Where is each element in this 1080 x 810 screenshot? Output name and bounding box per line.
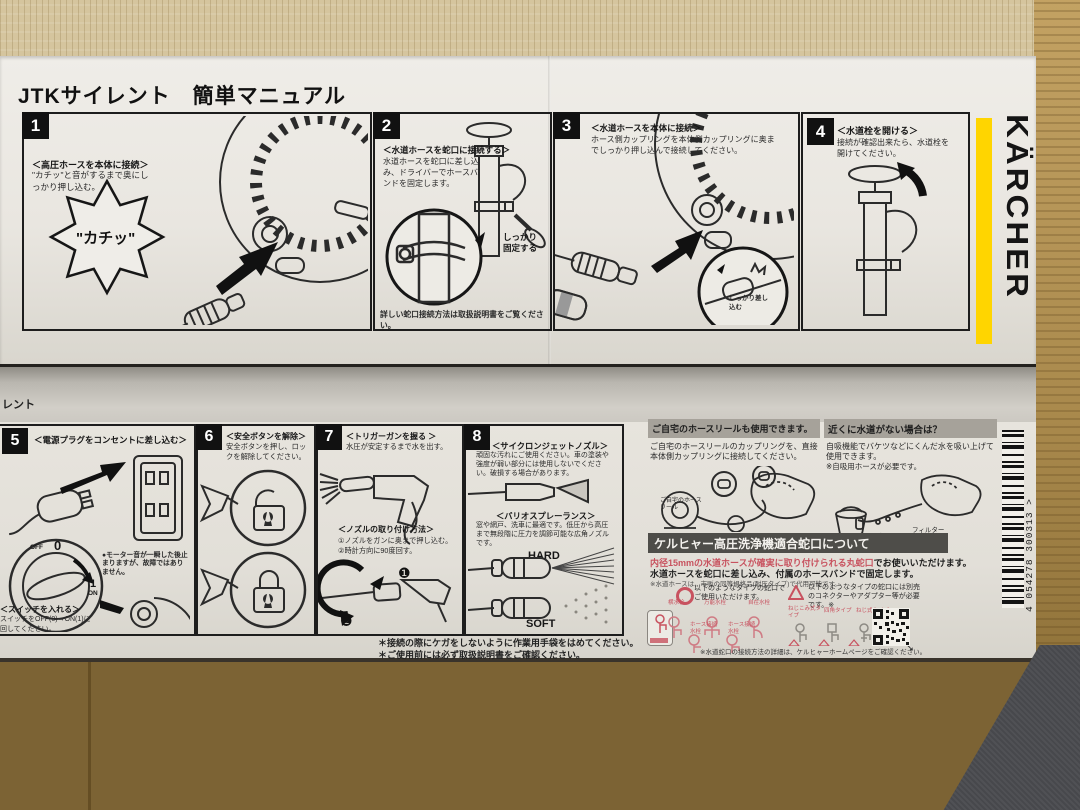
- step7-body: 水圧が安定するまで水を出す。: [346, 442, 456, 452]
- dial-zero-label: 0: [54, 538, 61, 553]
- karcher-logo: KÄRCHER: [972, 108, 1036, 354]
- self-priming-illustration: [826, 474, 996, 536]
- ng-faucet-glyphs: [788, 620, 884, 646]
- hose-reel-header: ご自宅のホースリールも使用できます。: [648, 419, 820, 438]
- dial-off-label: OFF: [30, 544, 43, 551]
- tatami-floor-bottom: [0, 656, 1080, 810]
- step5-sub-body: スイッチをOFF(0)→ON(1)に回してください。: [0, 615, 96, 635]
- marker-1-icon: ❶: [398, 566, 411, 580]
- step5-sub-heading: ＜スイッチを入れる＞: [0, 604, 80, 615]
- karcher-wordmark: KÄRCHER: [1000, 114, 1035, 352]
- click-sound-callout: "カチッ": [76, 227, 135, 248]
- step7-step-b: ②時計方向に90度回す。: [338, 546, 458, 556]
- tatami-floor-right: [1034, 0, 1080, 700]
- step7-number: 7: [316, 424, 342, 450]
- ng-type-1: ねじこみ式タイプ: [788, 606, 822, 619]
- faucet-section-header: ケルヒャー高圧洗浄機適合蛇口について: [648, 533, 948, 553]
- manual-title: JTKサイレント 簡単マニュアル: [18, 80, 346, 110]
- step4-number: 4: [807, 118, 834, 145]
- clamp-magnifier-illustration: [383, 206, 485, 308]
- faucet-footer: ※水道蛇口の接続方法の詳細は、ケルヒャーホームページをご確認ください。: [700, 646, 926, 656]
- ok-type-4: ホース接続水栓: [690, 622, 720, 635]
- safety-lock-illustration: [198, 466, 310, 630]
- barcode-number: 4 054278 300313 >: [1024, 428, 1035, 612]
- step7-step-a: ①ノズルをガンに奥まで押し込む。: [338, 536, 458, 546]
- step4-panel: 4 ＜水道栓を開ける＞ 接続が確認出来たら、水道栓を開けてください。: [801, 112, 970, 331]
- tatami-seam: [88, 660, 91, 810]
- box-edge-strip: [0, 364, 1036, 425]
- step8-number: 8: [464, 424, 490, 450]
- step8-panel: 8 ＜サイクロンジェットノズル＞ 頑固な汚れにご使用ください。車の塗装や強度が弱…: [464, 424, 624, 636]
- step1-panel: 1 "カチッ" ＜高圧ホースを: [22, 112, 372, 331]
- tatami-floor-top: [0, 0, 1080, 60]
- step3-heading: ＜水道ホースを本体に接続＞: [591, 122, 701, 134]
- step2-number: 2: [373, 112, 400, 139]
- edge-partial-label: レント: [2, 396, 35, 412]
- step1-number: 1: [22, 112, 49, 139]
- step6-panel: 6 ＜安全ボタンを解除＞ 安全ボタンを押し、ロックを解除してください。: [196, 424, 316, 636]
- step7-heading: ＜トリガーガンを握る ＞: [346, 431, 436, 442]
- step6-number: 6: [196, 424, 222, 450]
- footnote-2: ＊ご使用前には必ず取扱説明書をご確認ください。: [378, 648, 585, 661]
- step5-heading: ＜電源プラグをコンセントに差し込む＞: [34, 434, 187, 446]
- step2-panel: 2 ＜水道ホースを蛇口に接続する＞ 水道ホースを蛇口に差し込み、ドライバーでホー…: [373, 112, 552, 331]
- ng-type-2: 四角タイプ: [824, 606, 852, 614]
- dial-one-label: 1: [90, 578, 96, 590]
- step1-body: "カチッ"と音がするまで奥にしっかり押し込む。: [32, 170, 150, 194]
- pressure-washer-illustration: [152, 116, 368, 325]
- step5-panel: 5 ＜: [0, 424, 196, 636]
- warning-triangle-icon: [788, 585, 804, 600]
- marker-2-icon: ❷: [340, 614, 353, 628]
- step6-heading: ＜安全ボタンを解除＞: [226, 431, 306, 442]
- ok-type-3: 自在水栓: [748, 598, 770, 606]
- qr-code: [872, 608, 910, 646]
- karcher-yellow-bar: [976, 118, 992, 344]
- step5-note: ●モーター音が一瞬した後止まりますが、故障ではありません。: [102, 552, 190, 577]
- step7-panel: 7 ＜トリガーガンを握る ＞ 水圧が安定するまで水を出す。 ＜ノズルの取り付け方…: [316, 424, 464, 636]
- ok-type-2: 万能水栓: [704, 598, 726, 606]
- step2-note: しっかり固定する: [503, 232, 543, 254]
- ok-type-1: 横水栓: [668, 598, 685, 606]
- hose-reel-label: ご自宅のホースリール: [660, 498, 706, 512]
- step2-body: 水道ホースを蛇口に差し込み、ドライバーでホースバンドを固定します。: [383, 156, 479, 190]
- open-tap-illustration: [827, 160, 947, 320]
- no-water-header: 近くに水道がない場合は？: [824, 419, 997, 438]
- step4-body: 接続が確認出来たら、水道栓を開けてください。: [837, 137, 955, 159]
- step2-footer: 詳しい蛇口接続方法は取扱説明書をご覧ください。: [380, 310, 548, 332]
- step8-heading1: ＜サイクロンジェットノズル＞: [492, 440, 608, 452]
- ok-type-5: ホース接続水栓: [728, 622, 758, 635]
- step4-heading: ＜水道栓を開ける＞: [837, 124, 918, 137]
- step3-body: ホース側カップリングを本体側カップリングに奥までしっかり押し込んで接続してくださ…: [591, 134, 781, 156]
- step2-heading: ＜水道ホースを蛇口に接続する＞: [383, 144, 510, 156]
- nozzle-types-illustration: [466, 478, 618, 628]
- no-water-body: 自吸機能でバケツなどにくんだ水を吸い上げて使用できます。: [826, 442, 996, 462]
- hose-reel-body: ご自宅のホースリールのカップリングを、直接本体側カップリングに接続してください。: [650, 442, 822, 462]
- dial-on-label: ON: [88, 590, 98, 597]
- step3-note: しっかり差し込む: [729, 294, 771, 312]
- step6-body: 安全ボタンを押し、ロックを解除してください。: [226, 442, 310, 462]
- step7-sub-heading: ＜ノズルの取り付け方法＞: [338, 524, 434, 535]
- step3-panel: 3: [553, 112, 800, 331]
- no-water-note: ※自吸用ホースが必要です。: [826, 462, 996, 473]
- photo-karcher-box-manual: JTKサイレント 簡単マニュアル 1: [0, 0, 1080, 810]
- barcode: [1002, 430, 1024, 608]
- step8-body1: 頑固な汚れにご使用ください。車の塗装や強度が弱い部分には使用しないでください。破…: [476, 452, 614, 478]
